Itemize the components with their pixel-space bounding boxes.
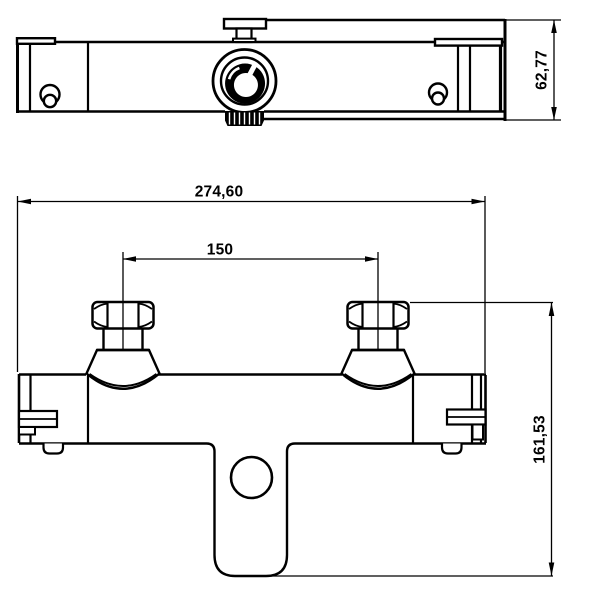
spacing-dimension-label: 150 (207, 242, 233, 259)
right-inlet-cone (342, 350, 415, 389)
dimension-body-depth: 62,77 (505, 20, 561, 120)
tee-handle-stem-base (233, 39, 256, 42)
front-view (19, 302, 486, 576)
height-dimension-label: 161,53 (532, 415, 549, 464)
right-cap-lines (458, 46, 470, 111)
dimension-inlet-spacing: 150 (123, 242, 378, 351)
width-extension-lines (18, 196, 486, 373)
drawing-svg: 62,77 (0, 0, 600, 600)
right-screw-inner (432, 93, 444, 105)
technical-drawing-canvas: 62,77 (0, 0, 600, 600)
height-arrow-top (549, 303, 555, 317)
front-right-bracket-step (473, 425, 484, 440)
top-view (17, 19, 505, 126)
left-screw-inner (44, 95, 56, 107)
front-left-bracket-step (19, 427, 35, 435)
outlet-thread-ridges (230, 113, 260, 125)
left-wall-bracket-plate (17, 38, 55, 44)
front-left-cap-lines (31, 375, 89, 444)
height-arrow-bottom (549, 563, 555, 577)
width-arrow-right (472, 199, 486, 205)
depth-arrow-top (551, 20, 557, 33)
width-arrow-left (18, 199, 32, 205)
width-dimension-label: 274,60 (195, 184, 244, 201)
spacing-arrow-left (123, 256, 136, 262)
front-right-screw-bump (442, 444, 462, 454)
right-wall-bracket-plate (435, 39, 502, 46)
spacing-arrow-right (365, 256, 378, 262)
dimension-height: 161,53 (268, 303, 554, 577)
front-left-screw-bump (44, 444, 64, 454)
spout-boss-circle (231, 457, 272, 498)
spacing-extension-lines (123, 252, 378, 350)
tee-handle (224, 19, 266, 29)
depth-dimension-label: 62,77 (534, 50, 551, 90)
dimension-overall-width: 274,60 (18, 184, 486, 374)
depth-arrow-bottom (551, 107, 557, 120)
left-inlet-cone (87, 350, 160, 389)
